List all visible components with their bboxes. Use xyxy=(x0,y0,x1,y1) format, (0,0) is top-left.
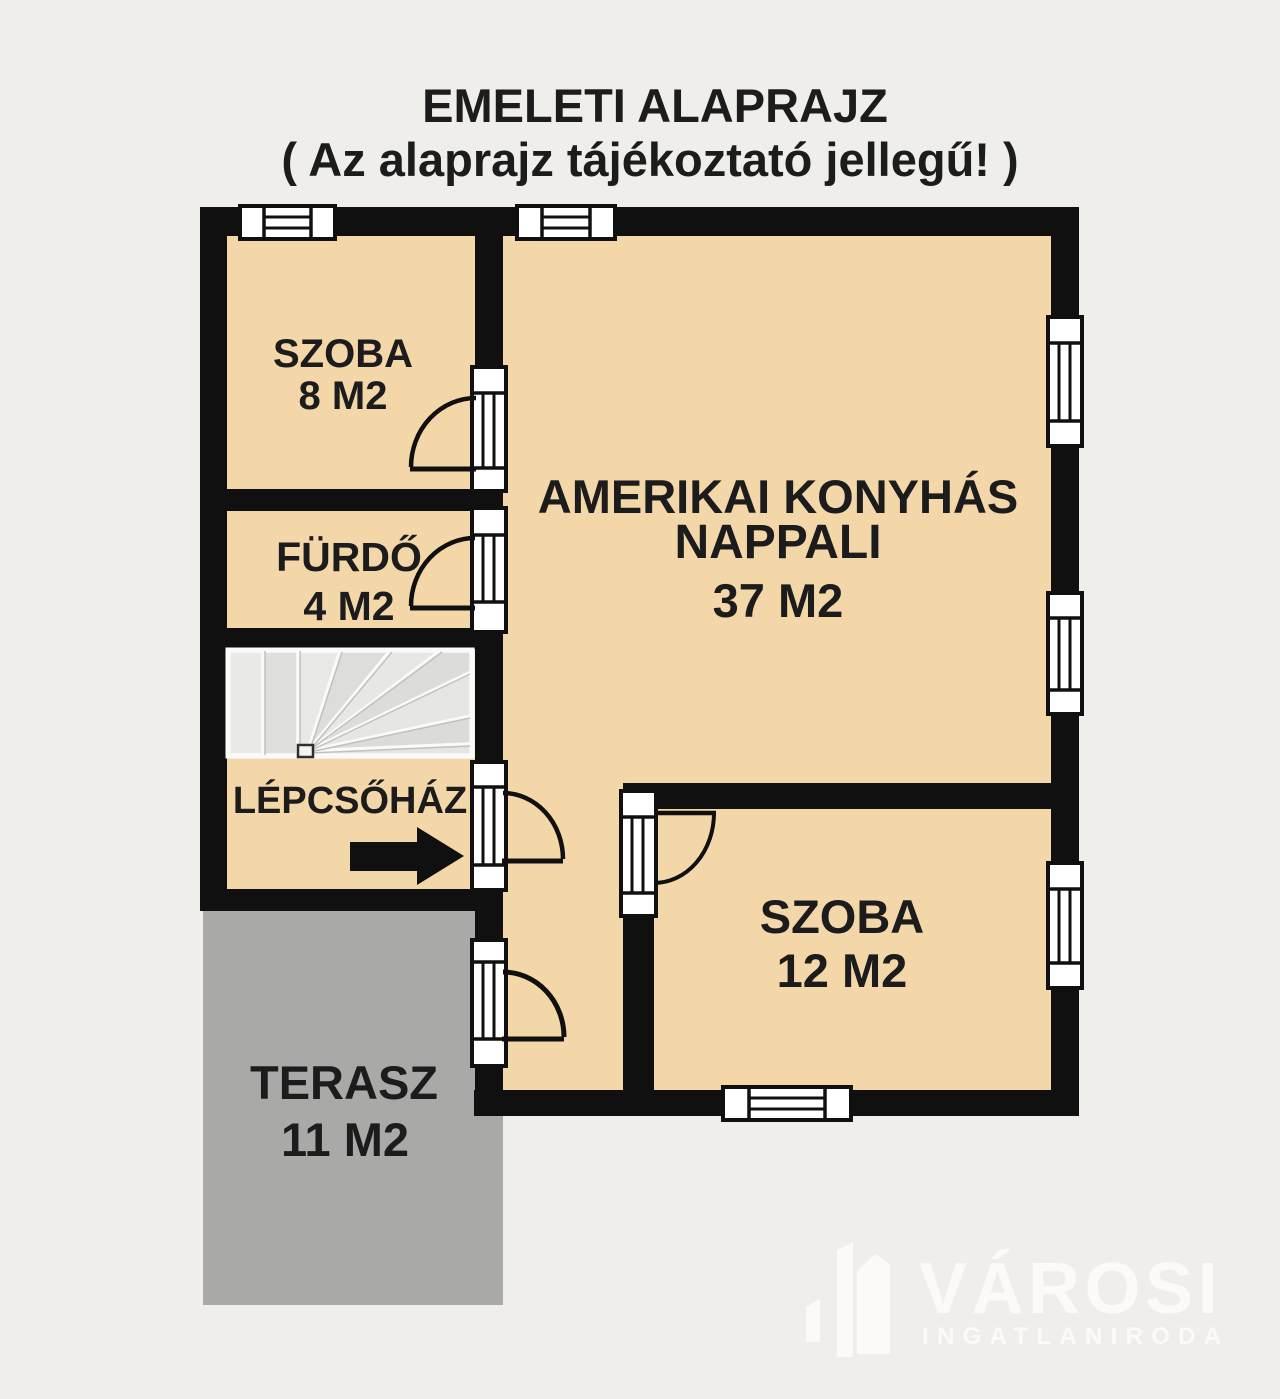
svg-text:SZOBA: SZOBA xyxy=(273,332,413,376)
svg-text:SZOBA: SZOBA xyxy=(760,890,925,943)
svg-text:( Az alaprajz tájékoztató jell: ( Az alaprajz tájékoztató jellegű! ) xyxy=(281,133,1018,186)
svg-text:INGATLANIRODA: INGATLANIRODA xyxy=(922,1323,1229,1350)
svg-text:NAPPALI: NAPPALI xyxy=(674,516,881,569)
svg-text:12 M2: 12 M2 xyxy=(777,944,908,997)
svg-text:FÜRDŐ: FÜRDŐ xyxy=(276,534,422,580)
svg-text:4 M2: 4 M2 xyxy=(303,583,394,629)
svg-text:TERASZ: TERASZ xyxy=(250,1056,438,1109)
svg-text:37 M2: 37 M2 xyxy=(713,574,844,627)
svg-text:EMELETI ALAPRAJZ: EMELETI ALAPRAJZ xyxy=(422,79,888,132)
svg-text:VÁROSI: VÁROSI xyxy=(919,1249,1222,1329)
svg-text:8 M2: 8 M2 xyxy=(299,374,388,418)
svg-text:LÉPCSŐHÁZ: LÉPCSŐHÁZ xyxy=(233,778,467,822)
svg-text:11 M2: 11 M2 xyxy=(281,1113,409,1166)
